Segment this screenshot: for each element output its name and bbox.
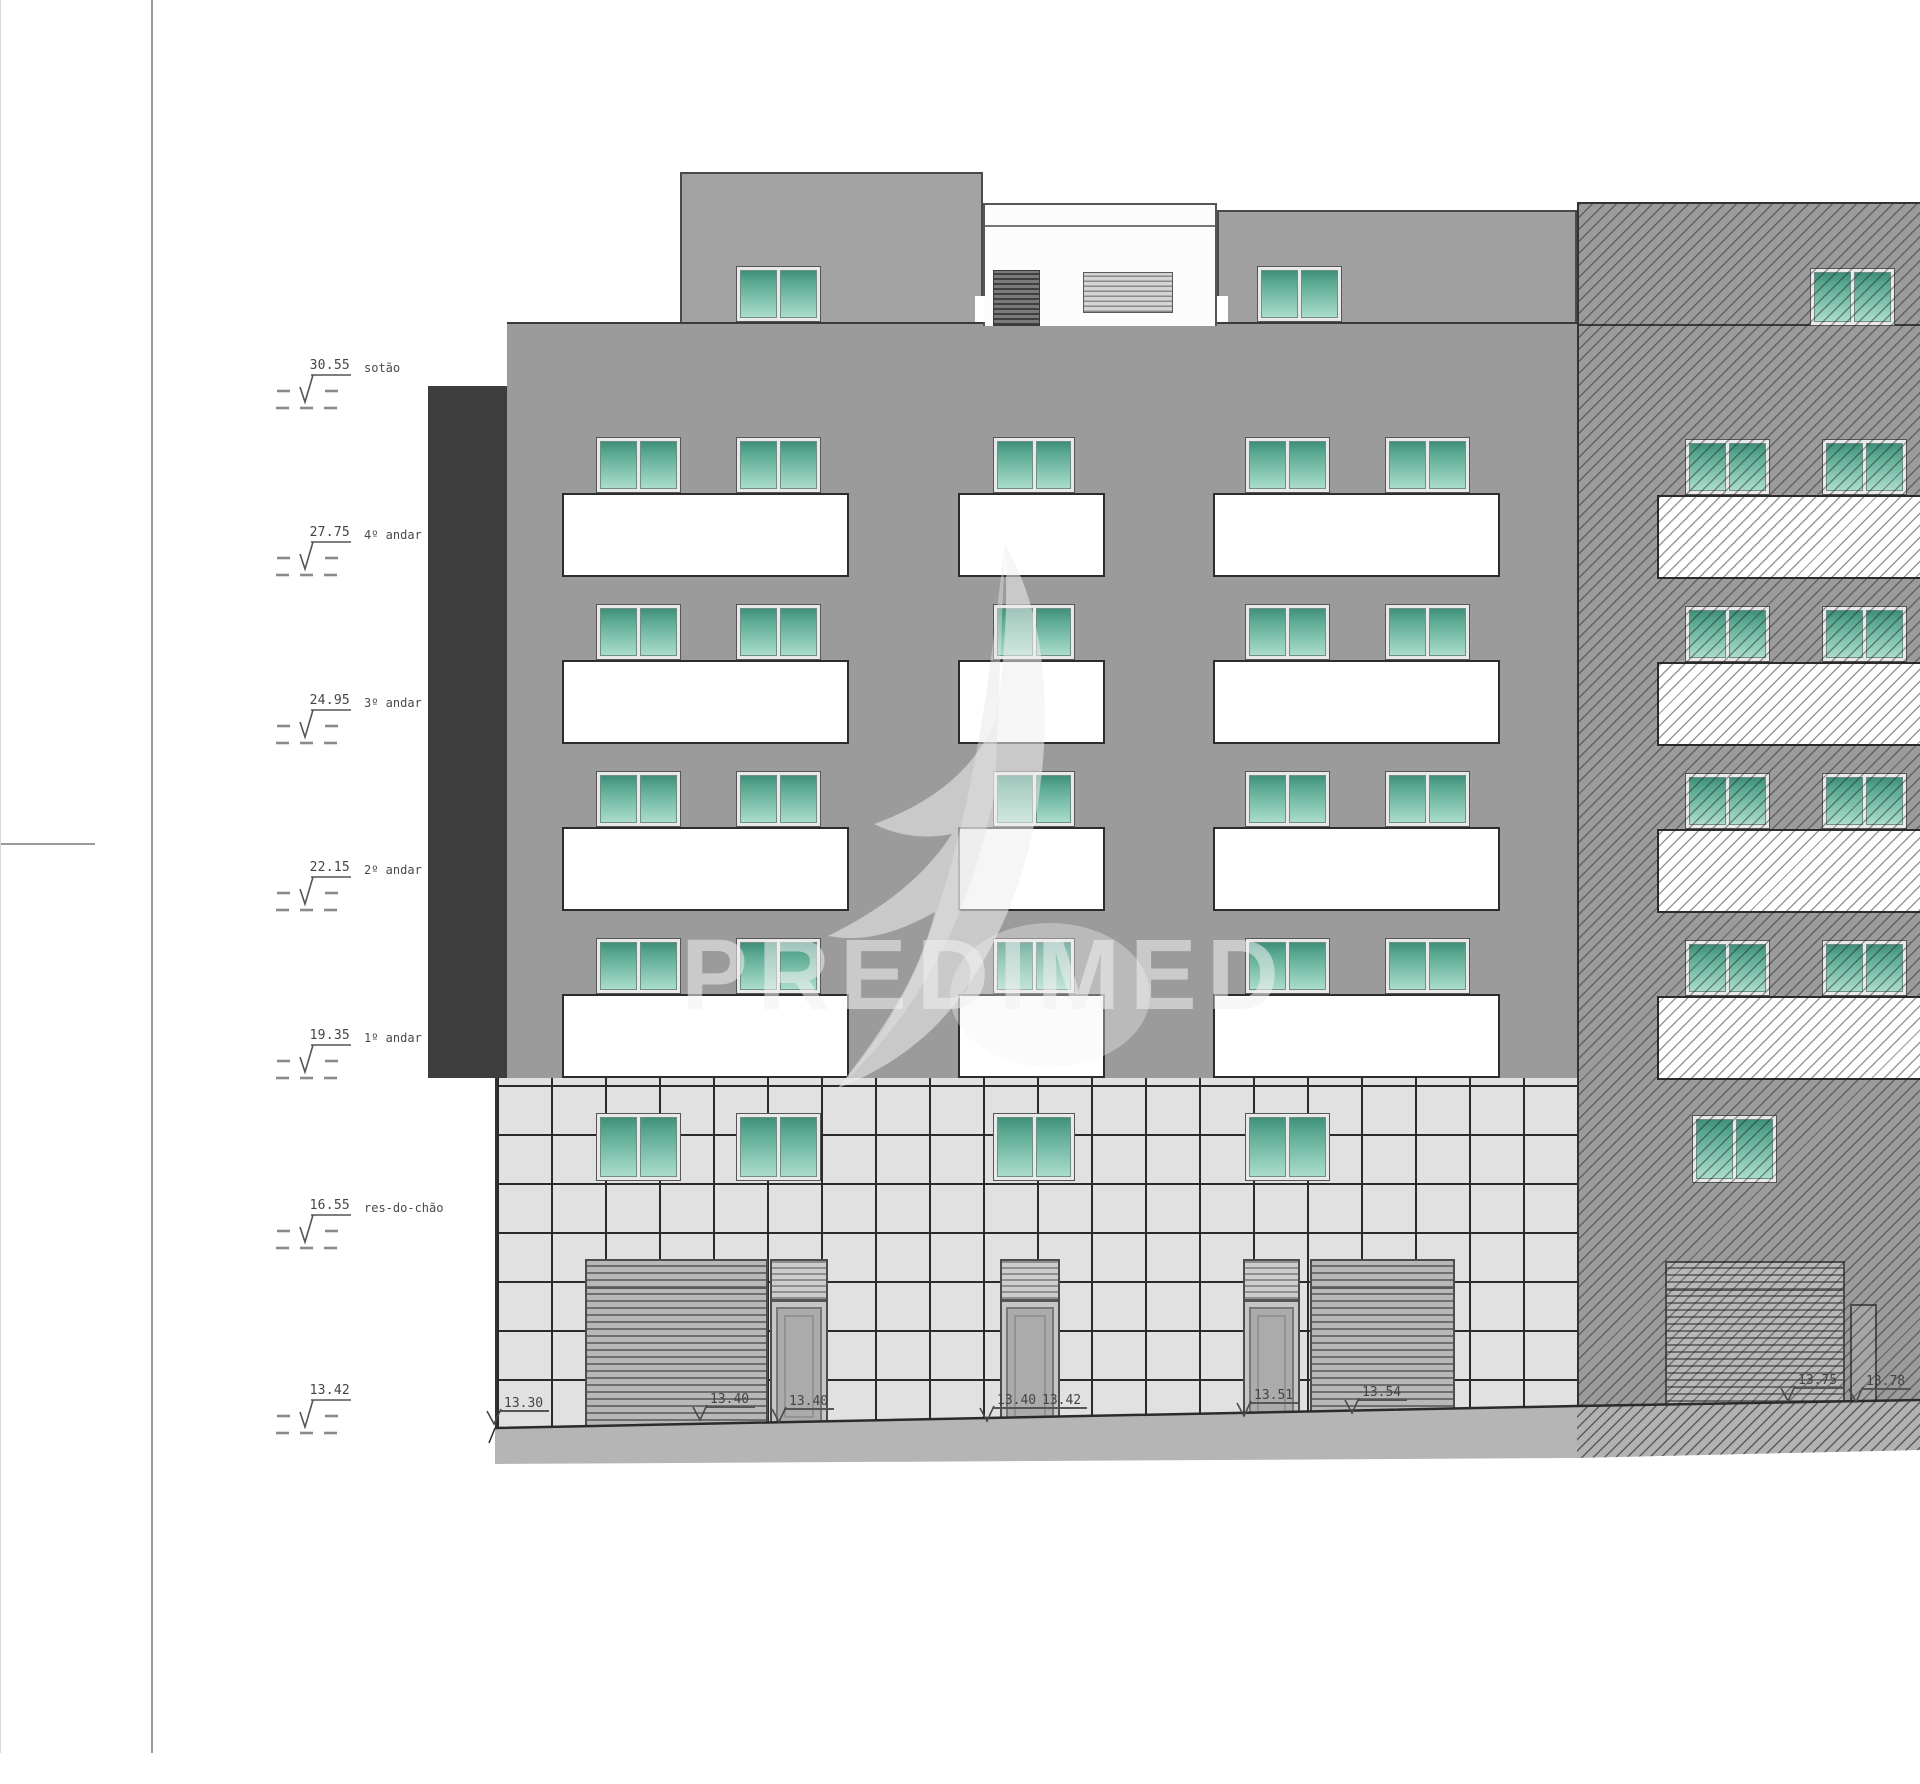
level-check-icon bbox=[1779, 1385, 1797, 1403]
ground-level-value: 13.40 bbox=[997, 1393, 1036, 1408]
roof-vent-light-icon bbox=[1083, 272, 1173, 313]
ground-level-underline bbox=[1358, 1399, 1407, 1401]
window-pane bbox=[640, 1117, 677, 1177]
elevation-marker: 24.95 3º andar bbox=[270, 692, 500, 754]
adjacent-window bbox=[1685, 773, 1770, 829]
facade-window bbox=[1245, 437, 1330, 493]
window-pane bbox=[780, 441, 817, 489]
window-pane bbox=[1689, 944, 1726, 992]
ground-level-value: 13.30 bbox=[504, 1396, 543, 1411]
window-pane bbox=[1249, 1117, 1286, 1177]
facade-window bbox=[736, 604, 821, 660]
ground-level-underline bbox=[1250, 1402, 1299, 1404]
level-check-icon bbox=[1847, 1386, 1865, 1404]
ground-level-mark: 13.51 bbox=[1254, 1388, 1293, 1403]
window-pane bbox=[1249, 942, 1286, 990]
architectural-elevation-sheet: PREDIMED 30.55 sotão bbox=[0, 0, 1920, 1784]
window-pane bbox=[1289, 775, 1326, 823]
adjacent-roof-window bbox=[1810, 268, 1895, 326]
window-pane bbox=[640, 942, 677, 990]
level-check-icon bbox=[978, 1405, 996, 1423]
window-pane bbox=[1289, 942, 1326, 990]
window-pane bbox=[1866, 944, 1903, 992]
facade-window bbox=[1385, 771, 1470, 827]
window-pane bbox=[740, 942, 777, 990]
facade-window bbox=[1385, 437, 1470, 493]
window-pane bbox=[1814, 272, 1851, 322]
window-pane bbox=[1036, 942, 1072, 990]
window-pane bbox=[1729, 610, 1766, 658]
window-pane bbox=[740, 441, 777, 489]
adjacent-window bbox=[1685, 940, 1770, 996]
window-pane bbox=[1036, 775, 1072, 823]
window-pane bbox=[1389, 608, 1426, 656]
level-value: 19.35 bbox=[288, 1028, 350, 1043]
window-pane bbox=[780, 775, 817, 823]
ground-level-mark: 13.75 bbox=[1798, 1373, 1837, 1388]
facade-window bbox=[993, 938, 1075, 994]
balcony bbox=[1213, 660, 1500, 744]
window-pane bbox=[1689, 443, 1726, 491]
facade-window bbox=[596, 938, 681, 994]
adjacent-window bbox=[1822, 940, 1907, 996]
adjacent-balcony bbox=[1657, 996, 1920, 1080]
window-pane bbox=[600, 1117, 637, 1177]
adjacent-window bbox=[1822, 606, 1907, 662]
ground-level-underline bbox=[1794, 1387, 1843, 1389]
elevation-marker: 27.75 4º andar bbox=[270, 524, 500, 586]
window-pane bbox=[740, 775, 777, 823]
balcony bbox=[562, 994, 849, 1078]
ground-level-mark: 13.40 bbox=[789, 1394, 828, 1409]
window-pane bbox=[1249, 608, 1286, 656]
window-pane bbox=[1429, 441, 1466, 489]
level-label: 1º andar bbox=[364, 1031, 422, 1045]
balcony bbox=[958, 493, 1105, 577]
elevation-marker: 30.55 sotão bbox=[270, 357, 500, 419]
penthouse-window bbox=[736, 266, 821, 322]
ground-floor-window bbox=[736, 1113, 821, 1181]
window-pane bbox=[997, 1117, 1033, 1177]
window-pane bbox=[1036, 608, 1072, 656]
ground-floor-window bbox=[596, 1113, 681, 1181]
ground-level-value: 13.42 bbox=[1042, 1393, 1081, 1408]
facade-window bbox=[596, 437, 681, 493]
parapet-rail-line bbox=[985, 225, 1215, 227]
window-pane bbox=[740, 608, 777, 656]
level-value: 30.55 bbox=[288, 358, 350, 373]
door-transom-grille bbox=[1245, 1261, 1298, 1302]
level-check-icon bbox=[691, 1404, 709, 1422]
window-pane bbox=[780, 942, 817, 990]
window-pane bbox=[1389, 775, 1426, 823]
adjacent-window bbox=[1822, 773, 1907, 829]
level-label: 2º andar bbox=[364, 863, 422, 877]
level-check-icon bbox=[770, 1406, 788, 1424]
ground-floor-window bbox=[993, 1113, 1075, 1181]
level-value: 24.95 bbox=[288, 693, 350, 708]
sheet-frame-hline bbox=[0, 843, 95, 845]
window-pane bbox=[1036, 1117, 1072, 1177]
door-transom-grille bbox=[1002, 1261, 1058, 1302]
window-pane bbox=[1826, 944, 1863, 992]
ground-level-underline bbox=[500, 1410, 549, 1412]
window-pane bbox=[1826, 777, 1863, 825]
window-pane bbox=[640, 775, 677, 823]
window-pane bbox=[600, 775, 637, 823]
window-pane bbox=[1696, 1119, 1733, 1179]
level-value: 27.75 bbox=[288, 525, 350, 540]
adjacent-window bbox=[1685, 439, 1770, 495]
window-pane bbox=[1866, 610, 1903, 658]
facade-window bbox=[993, 437, 1075, 493]
window-pane bbox=[1826, 610, 1863, 658]
window-pane bbox=[780, 1117, 817, 1177]
level-value: 13.42 bbox=[288, 1383, 350, 1398]
ground-level-underline bbox=[993, 1407, 1042, 1409]
balcony bbox=[1213, 493, 1500, 577]
facade-window bbox=[736, 771, 821, 827]
window-pane bbox=[600, 441, 637, 489]
window-pane bbox=[1866, 443, 1903, 491]
ground-level-value: 13.51 bbox=[1254, 1388, 1293, 1403]
ground-level-underline bbox=[1862, 1388, 1911, 1390]
balcony bbox=[562, 660, 849, 744]
window-pane bbox=[1729, 443, 1766, 491]
window-pane bbox=[640, 441, 677, 489]
window-pane bbox=[1854, 272, 1891, 322]
window-pane bbox=[1036, 441, 1072, 489]
window-pane bbox=[600, 608, 637, 656]
parapet-post bbox=[1217, 296, 1228, 322]
window-pane bbox=[997, 441, 1033, 489]
adjacent-window bbox=[1822, 439, 1907, 495]
window-pane bbox=[997, 775, 1033, 823]
window-pane bbox=[640, 608, 677, 656]
ground-level-mark: 13.40 bbox=[997, 1393, 1036, 1408]
facade-window bbox=[736, 938, 821, 994]
level-label: res-do-chão bbox=[364, 1201, 443, 1215]
penthouse-window bbox=[1257, 266, 1342, 322]
facade-window bbox=[1245, 604, 1330, 660]
window-pane bbox=[1729, 777, 1766, 825]
ground-level-mark: 13.40 bbox=[710, 1392, 749, 1407]
window-pane bbox=[780, 608, 817, 656]
facade-window bbox=[1385, 938, 1470, 994]
balcony bbox=[958, 994, 1105, 1078]
window-pane bbox=[1261, 270, 1298, 318]
balcony bbox=[562, 493, 849, 577]
roof-vent-dark-icon bbox=[993, 270, 1040, 326]
ground-level-underline bbox=[785, 1408, 834, 1410]
ground-level-value: 13.78 bbox=[1866, 1374, 1905, 1389]
adjacent-balcony bbox=[1657, 495, 1920, 579]
level-check-icon bbox=[1235, 1400, 1253, 1418]
window-pane bbox=[1689, 777, 1726, 825]
window-pane bbox=[740, 1117, 777, 1177]
adjacent-ground-window bbox=[1692, 1115, 1777, 1183]
level-label: 3º andar bbox=[364, 696, 422, 710]
elevation-marker: 22.15 2º andar bbox=[270, 859, 500, 921]
shutter-housing-line bbox=[1312, 1287, 1453, 1289]
window-pane bbox=[1289, 1117, 1326, 1177]
balcony bbox=[958, 660, 1105, 744]
window-pane bbox=[1429, 775, 1466, 823]
window-pane bbox=[1289, 608, 1326, 656]
ground-level-mark: 13.42 bbox=[1042, 1393, 1081, 1408]
penthouse-block-a bbox=[680, 172, 983, 322]
level-value: 16.55 bbox=[288, 1198, 350, 1213]
sidewalk bbox=[495, 1406, 1577, 1464]
window-pane bbox=[1826, 443, 1863, 491]
sheet-frame-vline bbox=[151, 0, 153, 1753]
window-pane bbox=[740, 270, 777, 318]
parapet-post bbox=[975, 296, 985, 322]
ground-level-underline bbox=[706, 1406, 755, 1408]
window-pane bbox=[1729, 944, 1766, 992]
level-value: 22.15 bbox=[288, 860, 350, 875]
level-label: sotão bbox=[364, 361, 400, 375]
window-pane bbox=[997, 608, 1033, 656]
balcony bbox=[562, 827, 849, 911]
sheet-edge-line bbox=[0, 0, 1, 1753]
facade-window bbox=[993, 604, 1075, 660]
window-pane bbox=[1249, 441, 1286, 489]
adjacent-garage-shutter bbox=[1665, 1261, 1845, 1411]
facade-window bbox=[1245, 771, 1330, 827]
elevation-marker: 13.42 bbox=[270, 1382, 500, 1444]
ground-level-mark: 13.78 bbox=[1866, 1374, 1905, 1389]
window-pane bbox=[1866, 777, 1903, 825]
facade-window bbox=[1245, 938, 1330, 994]
balcony bbox=[1213, 827, 1500, 911]
balcony bbox=[1213, 994, 1500, 1078]
ground-level-underline bbox=[1038, 1407, 1087, 1409]
level-check-icon bbox=[1343, 1397, 1361, 1415]
elevation-marker: 19.35 1º andar bbox=[270, 1027, 500, 1089]
shutter-housing-line bbox=[587, 1287, 766, 1289]
elevation-marker: 16.55 res-do-chão bbox=[270, 1197, 500, 1259]
window-pane bbox=[780, 270, 817, 318]
level-check-icon bbox=[485, 1408, 503, 1426]
sidewalk-hatched bbox=[1577, 1400, 1920, 1458]
window-pane bbox=[1389, 441, 1426, 489]
adjacent-balcony bbox=[1657, 829, 1920, 913]
ground-level-mark: 13.54 bbox=[1362, 1385, 1401, 1400]
door-transom-grille bbox=[772, 1261, 826, 1302]
window-pane bbox=[1689, 610, 1726, 658]
facade-window bbox=[736, 437, 821, 493]
adjacent-window bbox=[1685, 606, 1770, 662]
ground-line bbox=[460, 1390, 1920, 1480]
facade-window bbox=[596, 604, 681, 660]
adjacent-building bbox=[1577, 202, 1920, 1410]
facade-window bbox=[596, 771, 681, 827]
balcony bbox=[958, 827, 1105, 911]
ground-level-value: 13.40 bbox=[710, 1392, 749, 1407]
facade-window bbox=[993, 771, 1075, 827]
level-label: 4º andar bbox=[364, 528, 422, 542]
ground-level-value: 13.40 bbox=[789, 1394, 828, 1409]
shutter-housing-line bbox=[1667, 1289, 1843, 1291]
facade-window bbox=[1385, 604, 1470, 660]
window-pane bbox=[1249, 775, 1286, 823]
window-pane bbox=[997, 942, 1033, 990]
ground-level-mark: 13.30 bbox=[504, 1396, 543, 1411]
window-pane bbox=[1429, 942, 1466, 990]
window-pane bbox=[1736, 1119, 1773, 1179]
ground-level-value: 13.54 bbox=[1362, 1385, 1401, 1400]
window-pane bbox=[600, 942, 637, 990]
window-pane bbox=[1389, 942, 1426, 990]
window-pane bbox=[1289, 441, 1326, 489]
window-pane bbox=[1301, 270, 1338, 318]
adjacent-balcony bbox=[1657, 662, 1920, 746]
window-pane bbox=[1429, 608, 1466, 656]
ground-level-value: 13.75 bbox=[1798, 1373, 1837, 1388]
ground-floor-window bbox=[1245, 1113, 1330, 1181]
